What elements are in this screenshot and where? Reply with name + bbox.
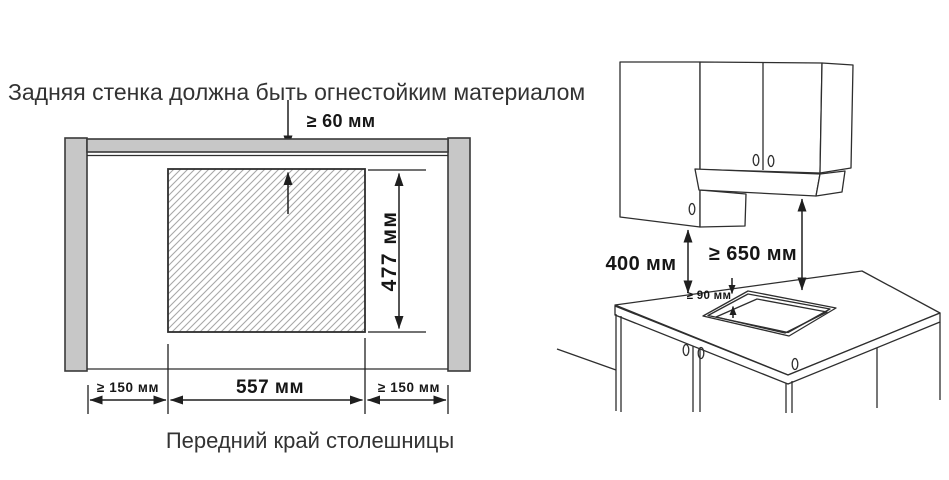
back-wall-bar [87, 139, 448, 152]
left-margin-label: ≥ 150 мм [97, 380, 159, 395]
wall-cabinet-left-side-panel [700, 190, 746, 227]
cutout-height-label: 477 мм [378, 211, 401, 292]
range-hood-side [816, 171, 845, 196]
wall-corner-line [557, 349, 616, 370]
cabinet-clearance-label: 400 мм [606, 253, 677, 275]
cutout-hatched-area [168, 169, 365, 332]
front-edge-caption: Передний край столешницы [166, 428, 454, 453]
hood-clearance-label: ≥ 650 мм [709, 243, 797, 265]
cutout-dimensions-diagram: Задняя стенка должна быть огнестойким ма… [8, 79, 585, 453]
installation-diagram: Задняя стенка должна быть огнестойким ма… [0, 0, 949, 480]
left-side-wall-bar [65, 138, 87, 371]
right-side-wall-bar [448, 138, 470, 371]
wall-cabinet-right-panel [820, 63, 853, 173]
installation-diagram-page: Задняя стенка должна быть огнестойким ма… [0, 0, 949, 480]
fireproof-wall-note: Задняя стенка должна быть огнестойким ма… [8, 79, 585, 105]
kitchen-installation-illustration: 400 мм ≥ 650 мм ≥ 90 мм [557, 62, 940, 413]
wall-cabinet-doors [700, 62, 822, 173]
edge-clearance-label: ≥ 90 мм [687, 290, 732, 302]
countertop-unit [557, 271, 940, 413]
right-margin-label: ≥ 150 мм [378, 380, 440, 395]
wall-cabinets [620, 62, 853, 227]
wall-cabinet-left [620, 62, 700, 227]
door-handle-icon [683, 345, 689, 356]
top-clearance-label: ≥ 60 мм [307, 111, 376, 131]
cutout-width-label: 557 мм [236, 377, 304, 398]
